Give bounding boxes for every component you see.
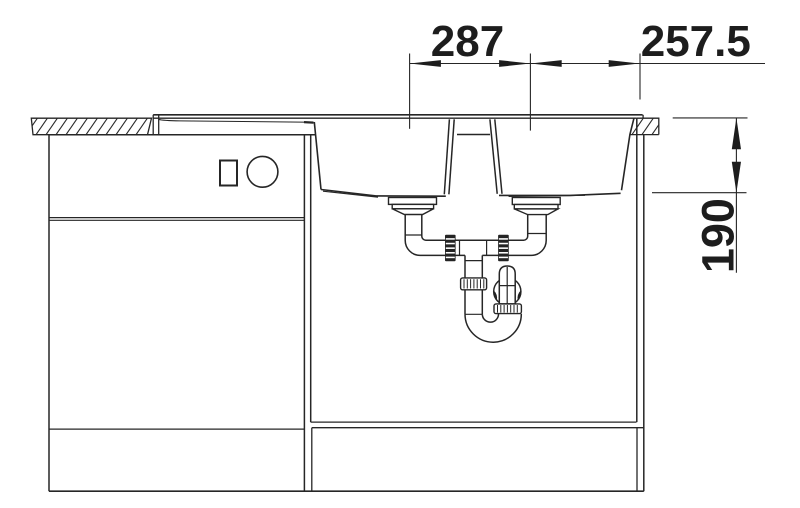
svg-text:257.5: 257.5 (641, 17, 751, 66)
svg-text:287: 287 (431, 17, 504, 66)
svg-text:190: 190 (693, 198, 744, 273)
